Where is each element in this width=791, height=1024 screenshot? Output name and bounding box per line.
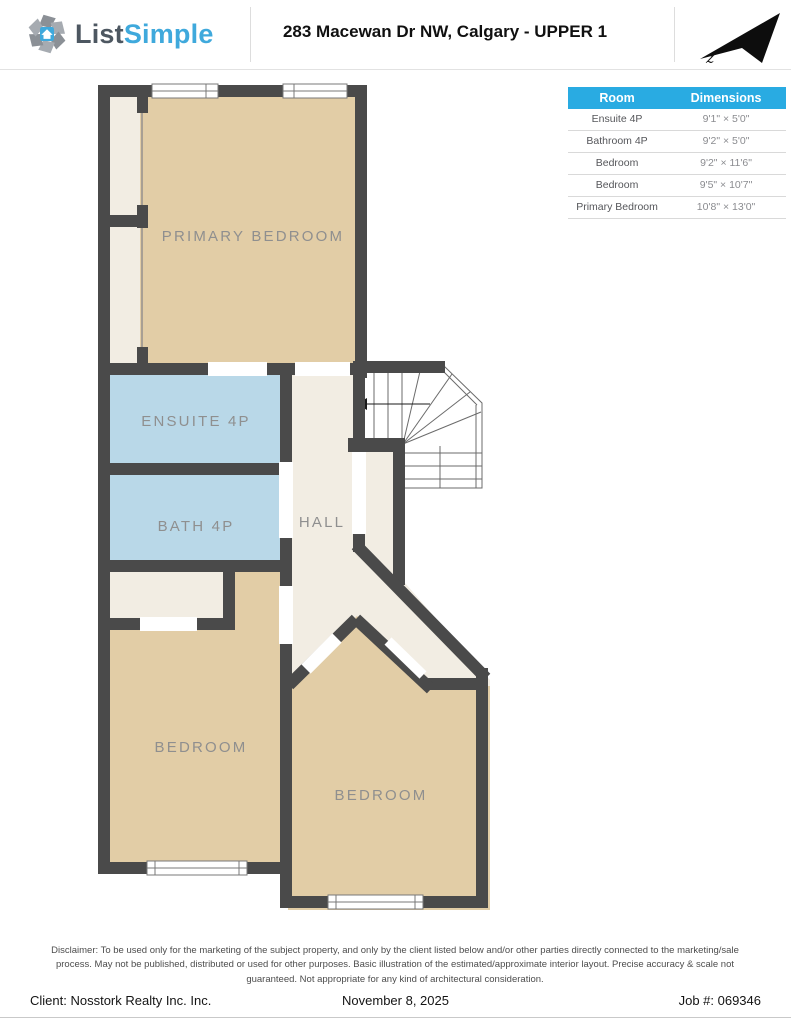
table-row: Bedroom 9'5" × 10'7": [568, 175, 786, 197]
window-primary-2: [283, 84, 347, 98]
cell-dimensions: 9'1" × 5'0": [666, 109, 786, 130]
door-ensuite: [208, 362, 267, 376]
wall-left: [98, 85, 110, 874]
opening-hall-stairs: [352, 452, 366, 534]
cell-dimensions: 9'2" × 11'6": [666, 153, 786, 174]
col-header-room: Room: [568, 87, 666, 109]
wall-ensuite-bath: [98, 463, 280, 475]
room-fills: [98, 88, 490, 910]
wall-hall-right-upper: [353, 361, 365, 453]
page-bottom-divider: [0, 1017, 791, 1018]
table-row: Bathroom 4P 9'2" × 5'0": [568, 131, 786, 153]
col-header-dimensions: Dimensions: [666, 87, 786, 109]
label-bath: BATH 4P: [158, 518, 235, 535]
cell-dimensions: 9'5" × 10'7": [666, 175, 786, 196]
disclaimer-text: Disclaimer: To be used only for the mark…: [45, 944, 745, 987]
cell-dimensions: 9'2" × 5'0": [666, 131, 786, 152]
window-bedroom-left: [147, 861, 247, 875]
window-bedroom-right: [328, 895, 423, 909]
footer-job-number: Job #: 069346: [679, 993, 761, 1008]
door-bedroom-left: [279, 586, 293, 644]
cell-room: Ensuite 4P: [568, 109, 666, 130]
wall-stair-top: [353, 361, 445, 373]
table-row: Primary Bedroom 10'8" × 13'0": [568, 197, 786, 219]
label-bedroom-right: BEDROOM: [335, 787, 428, 804]
label-primary-bedroom: PRIMARY BEDROOM: [162, 228, 344, 245]
wall-understair: [393, 440, 405, 585]
label-bedroom-left: BEDROOM: [155, 739, 248, 756]
wall-bedroom-right-right: [476, 668, 488, 908]
cell-room: Bedroom: [568, 175, 666, 196]
wall-primary-right: [355, 85, 367, 378]
wall-bedroom-right-left: [280, 677, 292, 908]
door-bath: [279, 462, 293, 538]
label-ensuite: ENSUITE 4P: [141, 413, 251, 430]
cell-room: Bedroom: [568, 153, 666, 174]
door-closet2: [140, 617, 197, 631]
wall-bath-bottom: [98, 560, 292, 572]
dimensions-table-header: Room Dimensions: [568, 87, 786, 109]
footer-date: November 8, 2025: [0, 993, 791, 1008]
label-hall: HALL: [299, 514, 345, 531]
wall-closet2-right: [223, 560, 235, 630]
cell-dimensions: 10'8" × 13'0": [666, 197, 786, 218]
cell-room: Bathroom 4P: [568, 131, 666, 152]
closet-door-line: [141, 97, 143, 363]
window-primary-1: [152, 84, 218, 98]
dimensions-table: Room Dimensions Ensuite 4P 9'1" × 5'0" B…: [568, 87, 786, 219]
table-row: Ensuite 4P 9'1" × 5'0": [568, 109, 786, 131]
table-row: Bedroom 9'2" × 11'6": [568, 153, 786, 175]
door-primary: [295, 362, 350, 376]
cell-room: Primary Bedroom: [568, 197, 666, 218]
